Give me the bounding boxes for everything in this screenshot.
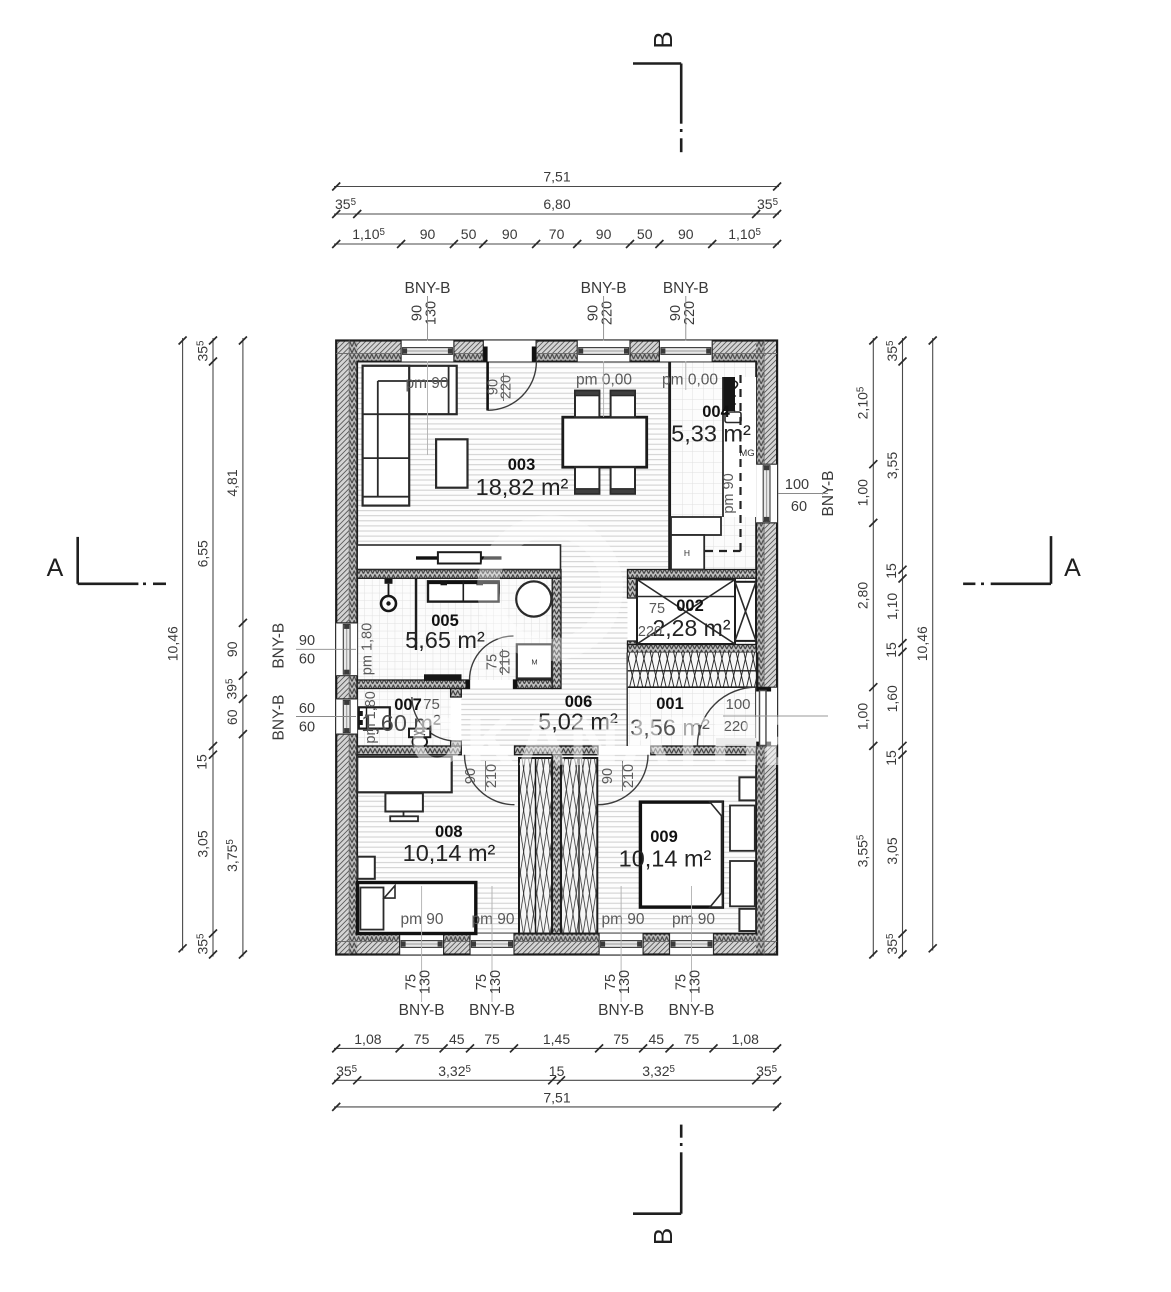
svg-text:15: 15: [883, 642, 899, 658]
svg-text:pm 90: pm 90: [400, 911, 443, 928]
svg-text:pm 90: pm 90: [721, 473, 737, 513]
svg-text:1,08: 1,08: [732, 1031, 759, 1047]
svg-text:pm 0,00: pm 0,00: [576, 372, 632, 389]
svg-text:5,65 m²: 5,65 m²: [405, 627, 485, 653]
svg-text:15: 15: [549, 1063, 565, 1079]
svg-text:15: 15: [194, 754, 210, 770]
svg-text:7,51: 7,51: [543, 1090, 570, 1106]
svg-text:A: A: [1064, 554, 1081, 582]
svg-text:130: 130: [424, 301, 440, 325]
svg-text:008: 008: [435, 823, 463, 841]
svg-text:90: 90: [502, 226, 518, 242]
svg-text:45: 45: [649, 1031, 665, 1047]
svg-text:220: 220: [682, 301, 698, 325]
svg-text:45: 45: [449, 1031, 465, 1047]
svg-text:130: 130: [488, 970, 504, 994]
svg-text:3,55: 3,55: [884, 452, 900, 479]
svg-text:130: 130: [617, 970, 633, 994]
svg-text:60: 60: [224, 709, 240, 725]
svg-text:10,46: 10,46: [165, 626, 181, 661]
svg-text:3,05: 3,05: [884, 837, 900, 864]
svg-text:pm 1,80: pm 1,80: [360, 623, 376, 675]
svg-text:BNY-B: BNY-B: [405, 280, 451, 297]
svg-text:4,81: 4,81: [224, 469, 240, 496]
svg-text:1,08: 1,08: [354, 1031, 381, 1047]
svg-text:6,80: 6,80: [543, 196, 570, 212]
svg-text:B: B: [648, 31, 678, 48]
svg-text:BNY-B: BNY-B: [469, 1002, 515, 1019]
svg-text:90: 90: [224, 641, 240, 657]
svg-text:A: A: [47, 554, 64, 582]
svg-text:BNY-B: BNY-B: [598, 1002, 644, 1019]
svg-text:60: 60: [299, 720, 315, 736]
svg-text:7,51: 7,51: [543, 169, 570, 185]
svg-text:BNY-B: BNY-B: [663, 280, 709, 297]
svg-text:2,28 m²: 2,28 m²: [653, 615, 731, 641]
svg-text:220: 220: [499, 375, 515, 399]
svg-text:15: 15: [883, 563, 899, 579]
svg-text:3,05: 3,05: [195, 830, 211, 857]
svg-text:H: H: [684, 548, 690, 558]
svg-text:002: 002: [676, 597, 704, 615]
svg-text:5,33 m²: 5,33 m²: [671, 421, 751, 447]
svg-text:10,14 m²: 10,14 m²: [619, 846, 712, 872]
svg-text:pm 1,80: pm 1,80: [363, 691, 379, 743]
svg-text:15: 15: [883, 750, 899, 766]
svg-text:1,00: 1,00: [855, 479, 871, 506]
svg-text:75: 75: [484, 1031, 500, 1047]
svg-text:1,60: 1,60: [884, 685, 900, 712]
svg-text:6,55: 6,55: [195, 540, 211, 567]
svg-text:10,46: 10,46: [914, 626, 930, 661]
svg-text:90: 90: [596, 226, 612, 242]
svg-text:009: 009: [650, 828, 678, 846]
svg-text:50: 50: [461, 226, 477, 242]
svg-text:MG: MG: [739, 448, 754, 459]
svg-text:BNY-B: BNY-B: [581, 280, 627, 297]
svg-text:130: 130: [688, 970, 704, 994]
svg-text:pm 90: pm 90: [601, 911, 644, 928]
svg-text:60: 60: [299, 652, 315, 668]
svg-text:BNY-B: BNY-B: [271, 695, 288, 741]
svg-text:70: 70: [549, 226, 565, 242]
svg-text:220: 220: [600, 301, 616, 325]
svg-text:75: 75: [613, 1031, 629, 1047]
svg-text:BNY-B: BNY-B: [669, 1002, 715, 1019]
svg-text:90: 90: [420, 226, 436, 242]
svg-text:75: 75: [684, 1031, 700, 1047]
svg-text:60: 60: [299, 701, 315, 717]
svg-text:pm 0,00: pm 0,00: [662, 372, 718, 389]
svg-text:2,80: 2,80: [855, 582, 871, 609]
svg-text:003: 003: [508, 456, 536, 474]
svg-text:B: B: [648, 1228, 678, 1245]
svg-text:10,14 m²: 10,14 m²: [403, 840, 496, 866]
svg-text:220: 220: [638, 624, 662, 640]
svg-text:100: 100: [785, 477, 809, 493]
svg-text:004: 004: [702, 403, 730, 421]
svg-text:90: 90: [299, 633, 315, 649]
svg-text:210: 210: [498, 650, 514, 674]
svg-text:75: 75: [649, 601, 665, 617]
svg-text:50: 50: [637, 226, 653, 242]
svg-text:OKANATHE: OKANATHE: [410, 702, 809, 780]
svg-text:130: 130: [418, 970, 434, 994]
svg-text:1,45: 1,45: [543, 1031, 570, 1047]
svg-text:BNY-B: BNY-B: [271, 623, 288, 669]
svg-text:1,10: 1,10: [884, 593, 900, 620]
svg-text:1,00: 1,00: [855, 703, 871, 730]
svg-text:60: 60: [791, 499, 807, 515]
svg-text:BNY-B: BNY-B: [399, 1002, 445, 1019]
svg-text:75: 75: [414, 1031, 430, 1047]
svg-text:90: 90: [678, 226, 694, 242]
svg-text:pm 90: pm 90: [672, 911, 715, 928]
svg-text:pm 90: pm 90: [471, 911, 514, 928]
svg-text:18,82 m²: 18,82 m²: [476, 474, 569, 500]
